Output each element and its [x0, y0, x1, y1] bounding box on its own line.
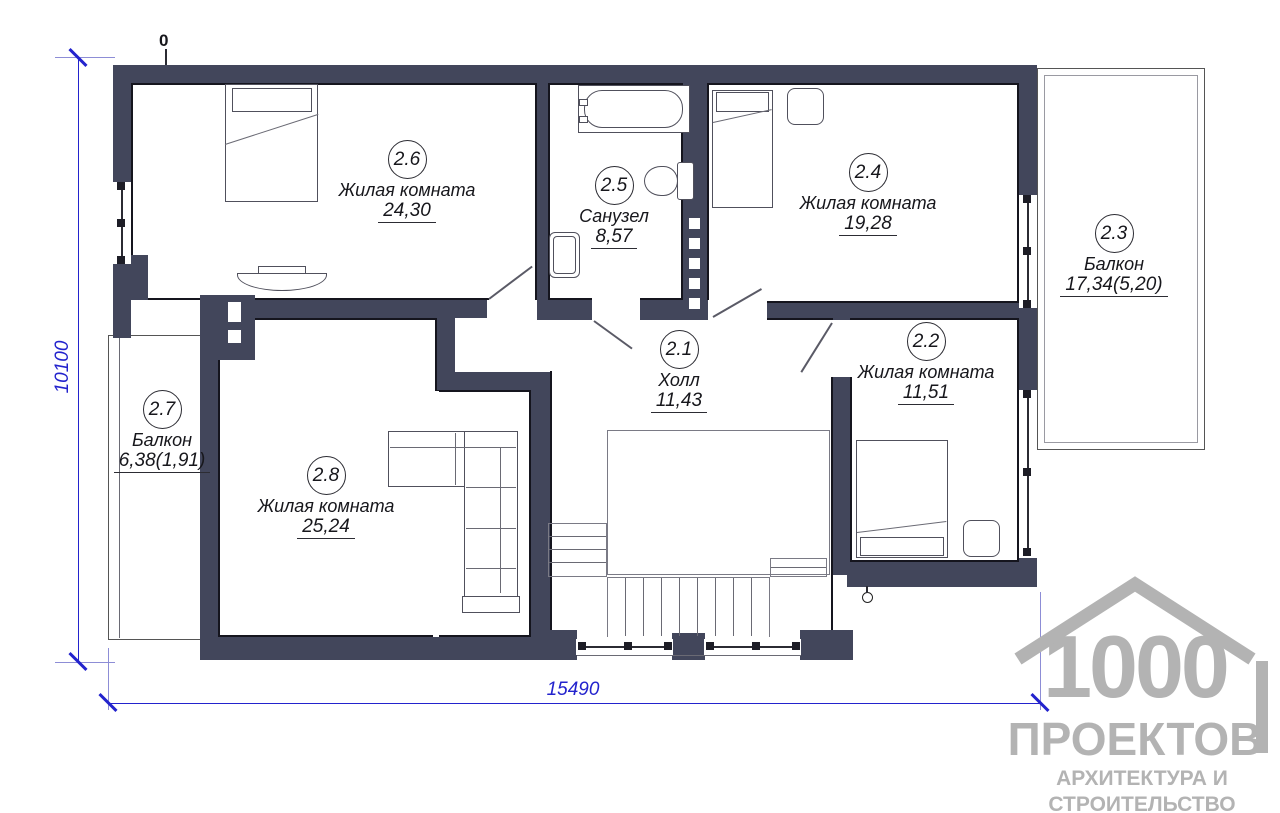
vent-square — [689, 258, 700, 269]
wall-under-2-6 — [218, 300, 487, 318]
wall-stair-pier-right — [800, 630, 853, 660]
room-label-2-6: 2.6 Жилая комната 24,30 — [307, 140, 507, 223]
dimension-line-vertical — [78, 57, 79, 663]
door-opening — [489, 297, 535, 302]
company-logo: 1000 ПРОЕКТОВ АРХИТЕКТУРА И СТРОИТЕЛЬСТВ… — [1002, 573, 1280, 813]
wall-jog — [437, 318, 455, 372]
dresser-top-icon — [258, 266, 306, 274]
stair-tread — [549, 549, 606, 550]
balcony-left-railing — [119, 337, 120, 638]
wall-bottom-left — [200, 637, 545, 660]
window-mullion — [752, 642, 760, 650]
window-mullion — [792, 642, 800, 650]
balcony-left-outline — [108, 335, 205, 640]
bell-marker-stem — [866, 586, 868, 593]
stair-tread — [733, 578, 734, 636]
stair-tread — [643, 578, 644, 636]
pillow-icon — [716, 92, 769, 112]
faucet-icon — [579, 116, 588, 123]
vent-square — [689, 298, 700, 309]
wall-stair-pier-left — [531, 630, 577, 660]
logo-word: ПРОЕКТОВ — [1008, 713, 1263, 765]
stair-tread — [715, 578, 716, 636]
wall-under-2-4 — [765, 303, 1019, 318]
room-number-badge: 2.8 — [307, 456, 346, 495]
door-opening — [592, 297, 640, 322]
vent-square — [689, 278, 700, 289]
room-number-badge: 2.3 — [1095, 214, 1134, 253]
stair-void-outline — [607, 430, 830, 575]
window-mullion — [117, 256, 125, 264]
bathtub-basin-icon — [584, 90, 683, 128]
room-label-2-3: 2.3 Балкон 17,34(5,20) — [1014, 214, 1214, 297]
nightstand-icon — [963, 520, 1000, 557]
dimension-extension — [55, 662, 115, 663]
room-label-2-1: 2.1 Холл 11,43 — [579, 330, 779, 413]
window-mullion — [624, 642, 632, 650]
dimension-value-horizontal: 15490 — [498, 679, 648, 701]
door-opening — [549, 320, 553, 371]
wall-left-lower — [200, 335, 218, 660]
window-mullion — [578, 642, 586, 650]
seam-patch — [433, 391, 439, 637]
room-number-badge: 2.7 — [143, 390, 182, 429]
room-label-2-2: 2.2 Жилая комната 11,51 — [826, 322, 1026, 405]
room-number-badge: 2.4 — [849, 153, 888, 192]
room-number-badge: 2.5 — [595, 166, 634, 205]
sofa-line — [455, 433, 456, 485]
floor-plan: 2.1 Холл 11,43 2.2 Жилая комната 11,51 2… — [0, 0, 1280, 813]
sofa-armrest-icon — [462, 596, 520, 613]
window-mullion — [117, 182, 125, 190]
dimension-extension — [55, 57, 115, 58]
sofa-line — [466, 568, 516, 569]
window-mullion — [1023, 300, 1031, 308]
sofa-line — [466, 528, 516, 529]
stair-tread — [625, 578, 626, 636]
window-sill-line — [577, 655, 801, 656]
sofa-line — [466, 487, 516, 488]
stair-tread — [771, 567, 826, 568]
stair-tread — [549, 536, 606, 537]
vent-square — [228, 302, 241, 322]
room-number-badge: 2.2 — [907, 322, 946, 361]
stair-tread — [751, 578, 752, 636]
pillow-icon — [232, 88, 312, 112]
window-mullion — [1023, 195, 1031, 203]
nightstand-icon — [787, 88, 824, 125]
window-mullion — [664, 642, 672, 650]
wall-bath-bottom-left — [537, 300, 592, 320]
room-number-badge: 2.1 — [660, 330, 699, 369]
stair-upper-flight — [548, 523, 607, 577]
stair-tread — [679, 578, 680, 636]
headboard-icon — [860, 537, 944, 556]
logo-number: 1000 — [1043, 617, 1227, 716]
logo-tagline-1: АРХИТЕКТУРА И — [1056, 767, 1228, 790]
stair-tread — [549, 562, 606, 563]
origin-marker-stem — [165, 49, 167, 65]
stair-tread — [697, 578, 698, 636]
room-label-2-4: 2.4 Жилая комната 19,28 — [768, 153, 968, 236]
wall-top — [113, 65, 1037, 83]
window-mullion — [117, 219, 125, 227]
logo-tagline-2: СТРОИТЕЛЬСТВО — [1048, 793, 1235, 813]
room-number-badge: 2.6 — [388, 140, 427, 179]
sofa-line — [500, 447, 501, 593]
window-mullion — [706, 642, 714, 650]
room-label-2-8: 2.8 Жилая комната 25,24 — [226, 456, 426, 539]
window-mullion — [1023, 548, 1031, 556]
faucet-icon — [579, 99, 588, 106]
wall-hall-west — [531, 372, 550, 660]
vent-square — [228, 330, 241, 343]
dimension-line-horizontal — [108, 703, 1040, 704]
window-mullion — [1023, 468, 1031, 476]
stair-lower-flight — [607, 577, 770, 637]
origin-marker: 0 — [159, 31, 168, 51]
stair-tread — [661, 578, 662, 636]
room-label-2-5: 2.5 Санузел 8,57 — [514, 166, 714, 249]
bell-marker-icon — [862, 592, 873, 603]
sofa-icon — [464, 431, 518, 598]
sofa-line — [390, 447, 516, 448]
